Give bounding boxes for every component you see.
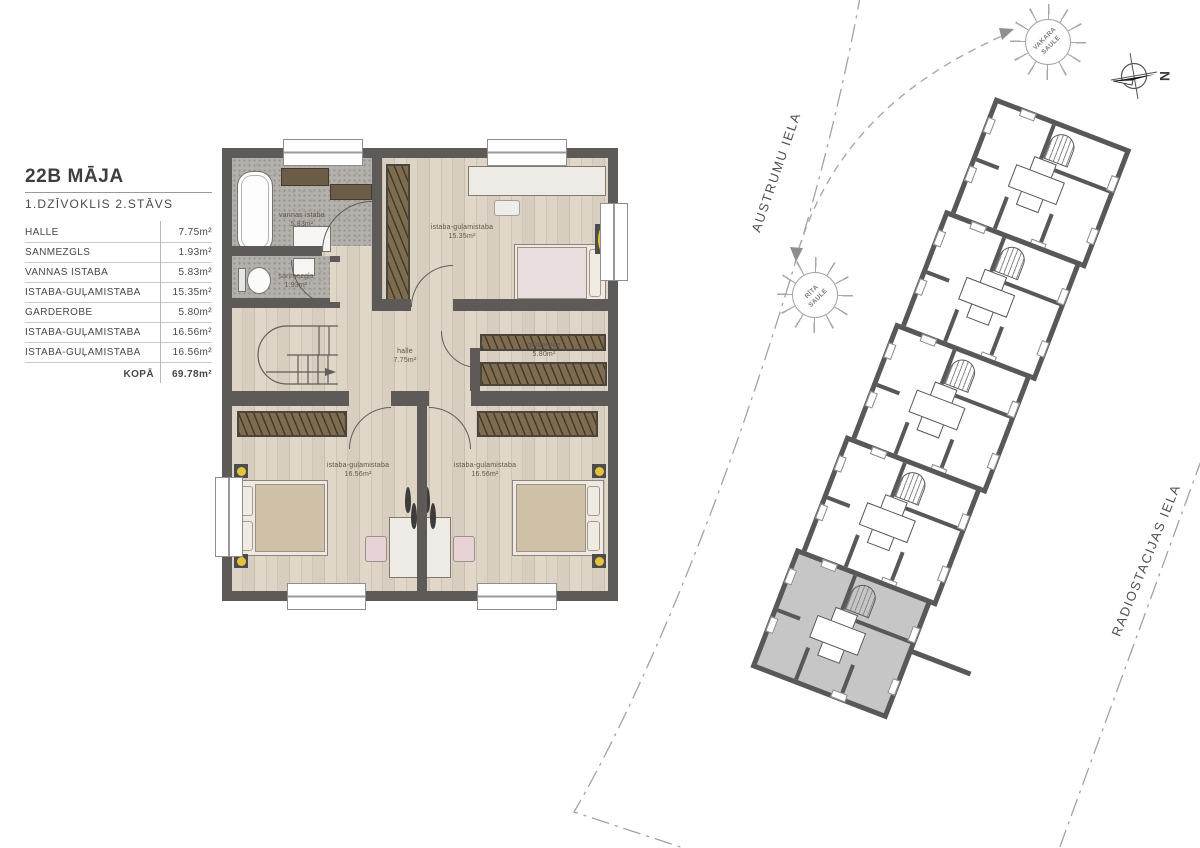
table-row: ISTABA-GUĻAMISTABA16.56m² (25, 343, 212, 363)
table-row: ISTABA-GUĻAMISTABA16.56m² (25, 323, 212, 343)
room-label: garderobe5.80m² (527, 341, 561, 359)
sun-morning-label: RĪTA SAULE (797, 277, 834, 314)
wall-segment (372, 246, 382, 256)
wall-segment (453, 299, 608, 311)
window (487, 139, 567, 166)
room-label: istaba-guļamistaba16.56m² (454, 461, 516, 479)
wall-segment (372, 256, 382, 311)
table-total-row: KOPĀ69.78m² (25, 363, 212, 385)
sun-morning-icon: RĪTA SAULE (777, 257, 853, 333)
room-label: halle7.75m² (394, 347, 417, 365)
wall-segment (222, 391, 349, 406)
north-label: N (1157, 71, 1173, 81)
sun-evening-label: VAKARA SAULE (1030, 24, 1067, 61)
sun-evening-icon: VAKARA SAULE (1010, 4, 1086, 80)
plot-boundary-line (1058, 458, 1200, 848)
room-label: sanmezgls1.93m² (278, 272, 313, 290)
page-title: 22B MĀJA (25, 166, 212, 193)
table-row: VANNAS ISTABA5.83m² (25, 263, 212, 283)
window (477, 583, 557, 610)
room-label: vannas istaba5.83m² (279, 211, 325, 229)
room-label: istaba-guļamistaba15.35m² (431, 223, 493, 241)
table-row: SANMEZGLS1.93m² (25, 243, 212, 263)
street-label-austrumu: AUSTRUMU IELA (748, 110, 803, 234)
window (600, 203, 628, 281)
page-subtitle: 1.DZĪVOKLIS 2.STĀVS (25, 197, 212, 211)
wall-segment (391, 391, 429, 406)
wall-segment (417, 406, 427, 591)
room-label: istaba-guļamistaba16.56m² (327, 461, 389, 479)
area-table: HALLE7.75m² SANMEZGLS1.93m² VANNAS ISTAB… (25, 223, 212, 385)
table-row: ISTABA-GUĻAMISTABA15.35m² (25, 283, 212, 303)
window (215, 477, 243, 557)
street-label-radiostacijas: RADIOSTACIJAS IELA (1109, 482, 1184, 639)
floorplan-sheet: 22B MĀJA 1.DZĪVOKLIS 2.STĀVS HALLE7.75m²… (0, 0, 1200, 848)
table-row: GARDEROBE5.80m² (25, 303, 212, 323)
window (283, 139, 363, 166)
wall-segment (222, 246, 322, 256)
wall-segment (382, 299, 411, 311)
window (287, 583, 366, 610)
wall-segment (372, 158, 382, 246)
unit-wall-stub (910, 649, 972, 677)
table-row: HALLE7.75m² (25, 223, 212, 243)
north-compass-icon (1108, 50, 1160, 102)
wall-segment (471, 391, 608, 406)
legend-panel: 22B MĀJA 1.DZĪVOKLIS 2.STĀVS HALLE7.75m²… (25, 166, 212, 385)
